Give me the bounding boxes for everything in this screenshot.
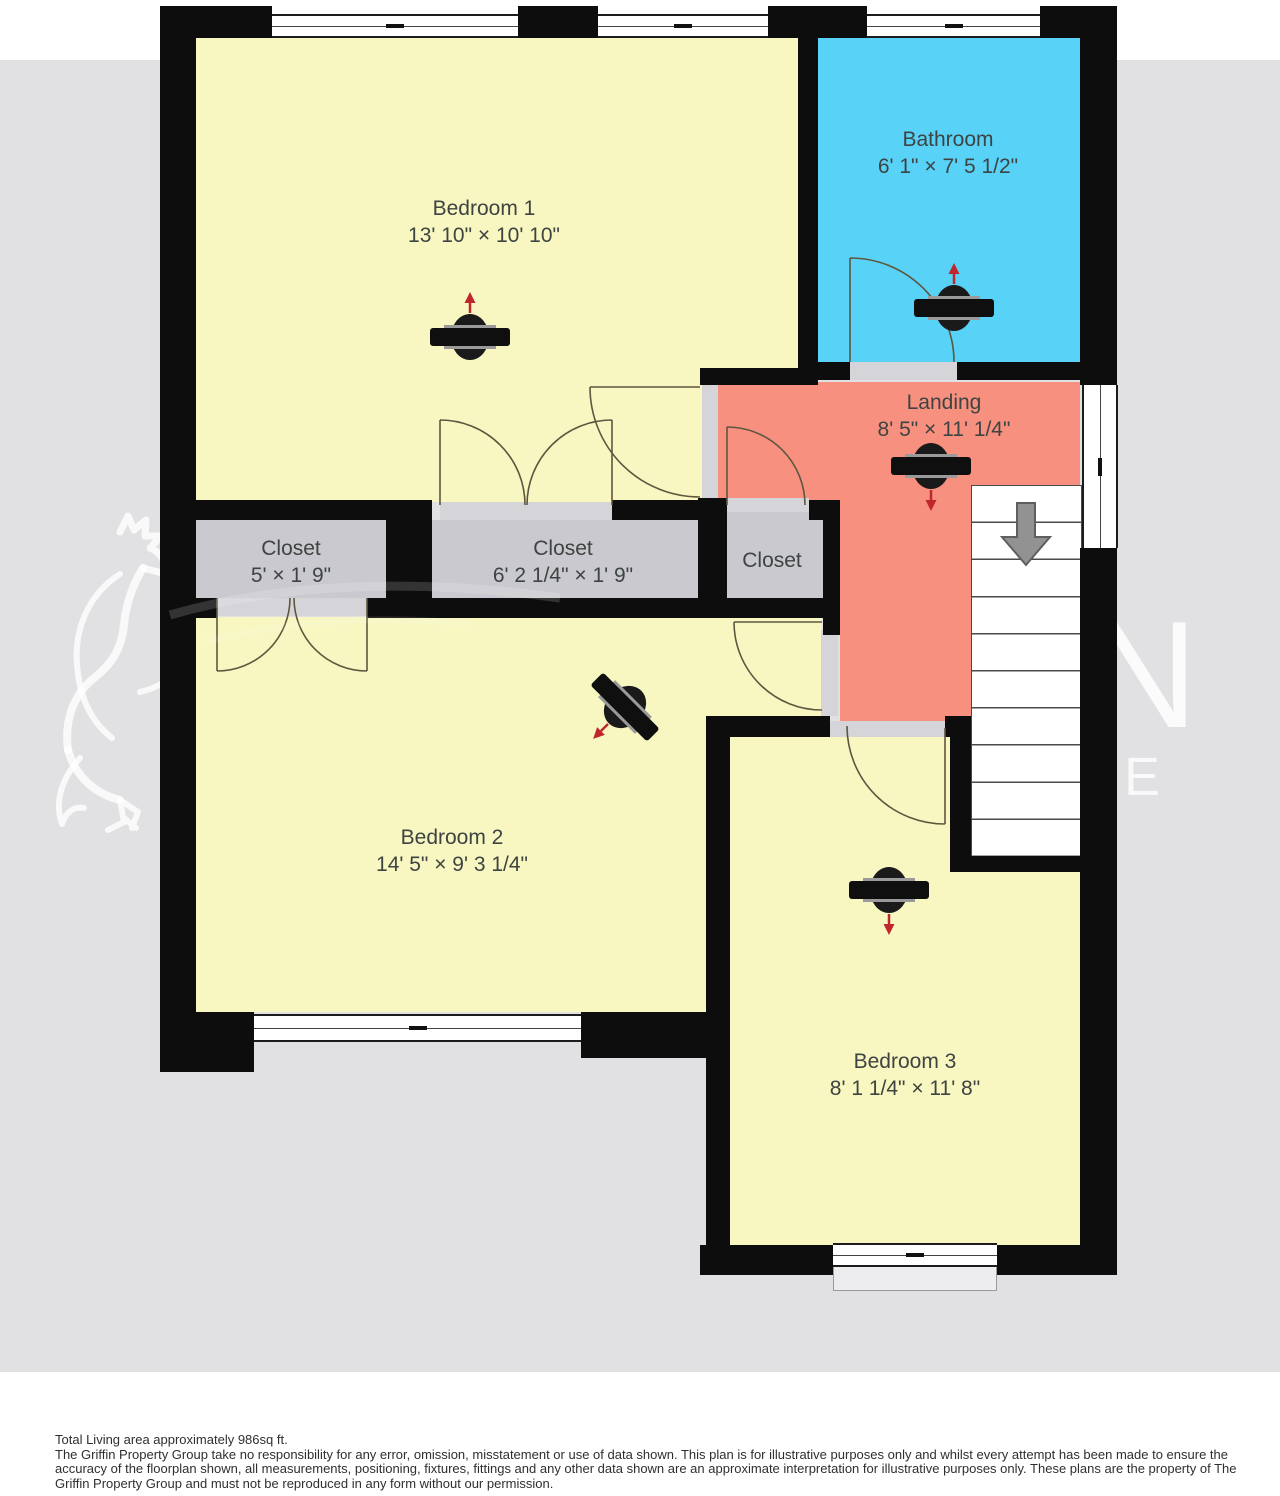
wall-segment [518, 6, 598, 38]
wall-segment [386, 520, 432, 600]
wall-segment [706, 716, 830, 737]
room-dimensions: 8' 5" × 11' 1/4" [878, 416, 1011, 443]
door-threshold [850, 362, 957, 380]
floorplan-page: GRIFFIN PEOPLE [0, 0, 1280, 1496]
wall-segment [1040, 6, 1117, 38]
griffin-watermark-icon [28, 512, 178, 842]
room-label-bedroom1: Bedroom 1 13' 10" × 10' 10" [408, 195, 560, 249]
room-label-bedroom3: Bedroom 3 8' 1 1/4" × 11' 8" [830, 1048, 980, 1102]
window [1082, 385, 1118, 548]
wall-segment [160, 6, 272, 38]
room-name: Bathroom [878, 126, 1018, 153]
total-area-text: Total Living area approximately 986sq ft… [55, 1433, 1260, 1448]
window [833, 1243, 997, 1267]
room-label-bathroom: Bathroom 6' 1" × 7' 5 1/2" [878, 126, 1018, 180]
wall-segment [700, 1245, 833, 1275]
wall-segment [768, 6, 867, 38]
door-threshold [821, 630, 838, 716]
wall-segment [160, 38, 196, 1012]
wall-segment [160, 598, 217, 618]
room-label-closet2: Closet 6' 2 1/4" × 1' 9" [493, 535, 633, 589]
room-name: Closet [251, 535, 331, 562]
wall-segment [950, 737, 971, 872]
room-bathroom [818, 37, 1080, 362]
door-threshold [440, 502, 612, 520]
room-name: Closet [742, 547, 802, 574]
wall-segment [950, 856, 1081, 872]
wall-segment [706, 716, 730, 1275]
room-label-closet1: Closet 5' × 1' 9" [251, 535, 331, 589]
window [272, 14, 518, 38]
wall-segment [798, 38, 818, 385]
window-sill [833, 1263, 997, 1291]
door-threshold [702, 385, 718, 500]
room-label-bedroom2: Bedroom 2 14' 5" × 9' 3 1/4" [376, 824, 528, 878]
wall-segment [700, 368, 818, 385]
room-bedroom2 [196, 617, 706, 1012]
wall-segment [1080, 548, 1117, 1275]
wall-segment [818, 362, 850, 380]
door-threshold [727, 498, 809, 512]
room-landing [840, 510, 971, 721]
wall-segment [1080, 38, 1117, 385]
room-name: Closet [493, 535, 633, 562]
room-bedroom2 [706, 617, 822, 716]
door-threshold [830, 721, 945, 737]
window [598, 14, 768, 38]
room-dimensions: 5' × 1' 9" [251, 562, 331, 589]
wall-segment [997, 1245, 1117, 1275]
wall-segment [367, 598, 840, 618]
window [254, 1014, 581, 1042]
disclaimer-text: The Griffin Property Group take no respo… [55, 1448, 1260, 1492]
footer: Total Living area approximately 986sq ft… [55, 1433, 1260, 1491]
room-label-landing: Landing 8' 5" × 11' 1/4" [878, 389, 1011, 443]
room-dimensions: 6' 1" × 7' 5 1/2" [878, 153, 1018, 180]
room-bedroom3 [730, 737, 950, 872]
room-name: Bedroom 3 [830, 1048, 980, 1075]
room-dimensions: 13' 10" × 10' 10" [408, 222, 560, 249]
wall-segment [957, 362, 1080, 380]
wall-segment [160, 500, 432, 520]
room-dimensions: 6' 2 1/4" × 1' 9" [493, 562, 633, 589]
window [867, 14, 1040, 38]
door-threshold [217, 598, 367, 616]
room-dimensions: 8' 1 1/4" × 11' 8" [830, 1075, 980, 1102]
wall-segment [160, 1012, 254, 1072]
room-name: Bedroom 1 [408, 195, 560, 222]
room-name: Bedroom 2 [376, 824, 528, 851]
room-label-closet3: Closet [742, 547, 802, 574]
staircase [971, 485, 1082, 858]
wall-segment [581, 1012, 730, 1058]
wall-segment [945, 716, 971, 737]
room-dimensions: 14' 5" × 9' 3 1/4" [376, 851, 528, 878]
room-name: Landing [878, 389, 1011, 416]
wall-segment [698, 498, 727, 600]
